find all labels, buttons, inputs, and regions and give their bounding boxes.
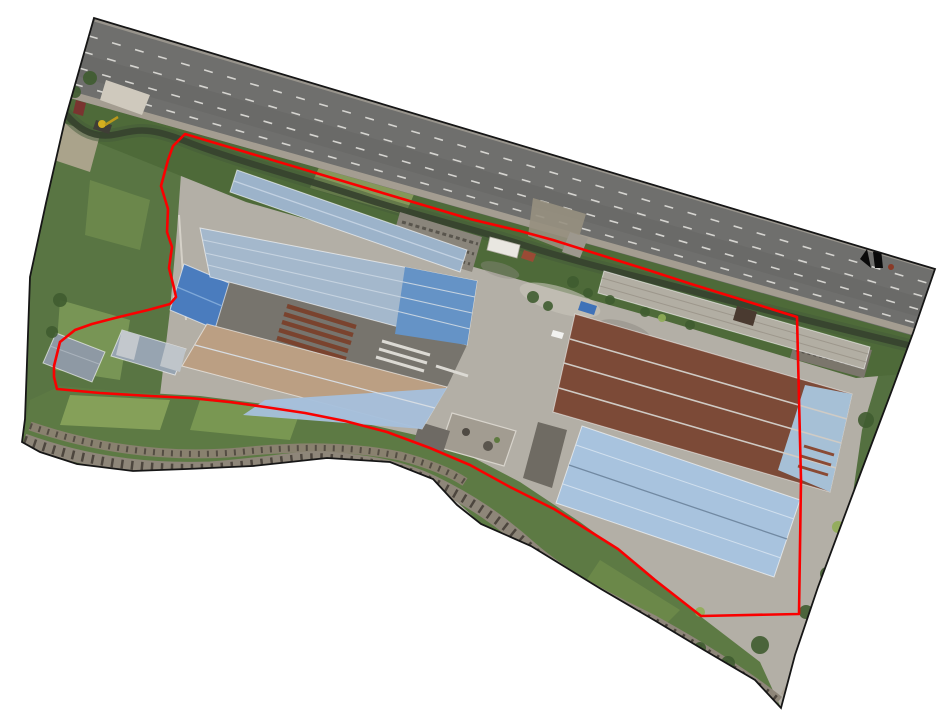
tree bbox=[640, 307, 650, 317]
tree bbox=[875, 445, 889, 459]
tree bbox=[751, 636, 769, 654]
red-brown-dot bbox=[888, 264, 894, 270]
tree bbox=[583, 288, 593, 298]
scene-svg bbox=[0, 0, 943, 718]
tree bbox=[858, 412, 874, 428]
main-warehouse-north-bright-bay bbox=[395, 267, 477, 345]
tree bbox=[685, 320, 695, 330]
grass-patch-south1 bbox=[60, 395, 170, 430]
tree bbox=[46, 326, 58, 338]
tree bbox=[605, 295, 615, 305]
tree bbox=[850, 512, 866, 528]
tree bbox=[567, 276, 579, 288]
ruin-spot-1 bbox=[462, 428, 470, 436]
tree bbox=[527, 291, 539, 303]
tree bbox=[53, 293, 67, 307]
ruin-spot-green bbox=[494, 437, 500, 443]
tree bbox=[83, 71, 97, 85]
ruin-spot-2 bbox=[483, 441, 493, 451]
tree bbox=[543, 301, 553, 311]
orthomosaic-canvas bbox=[0, 0, 943, 718]
bush-yellow bbox=[658, 314, 666, 322]
